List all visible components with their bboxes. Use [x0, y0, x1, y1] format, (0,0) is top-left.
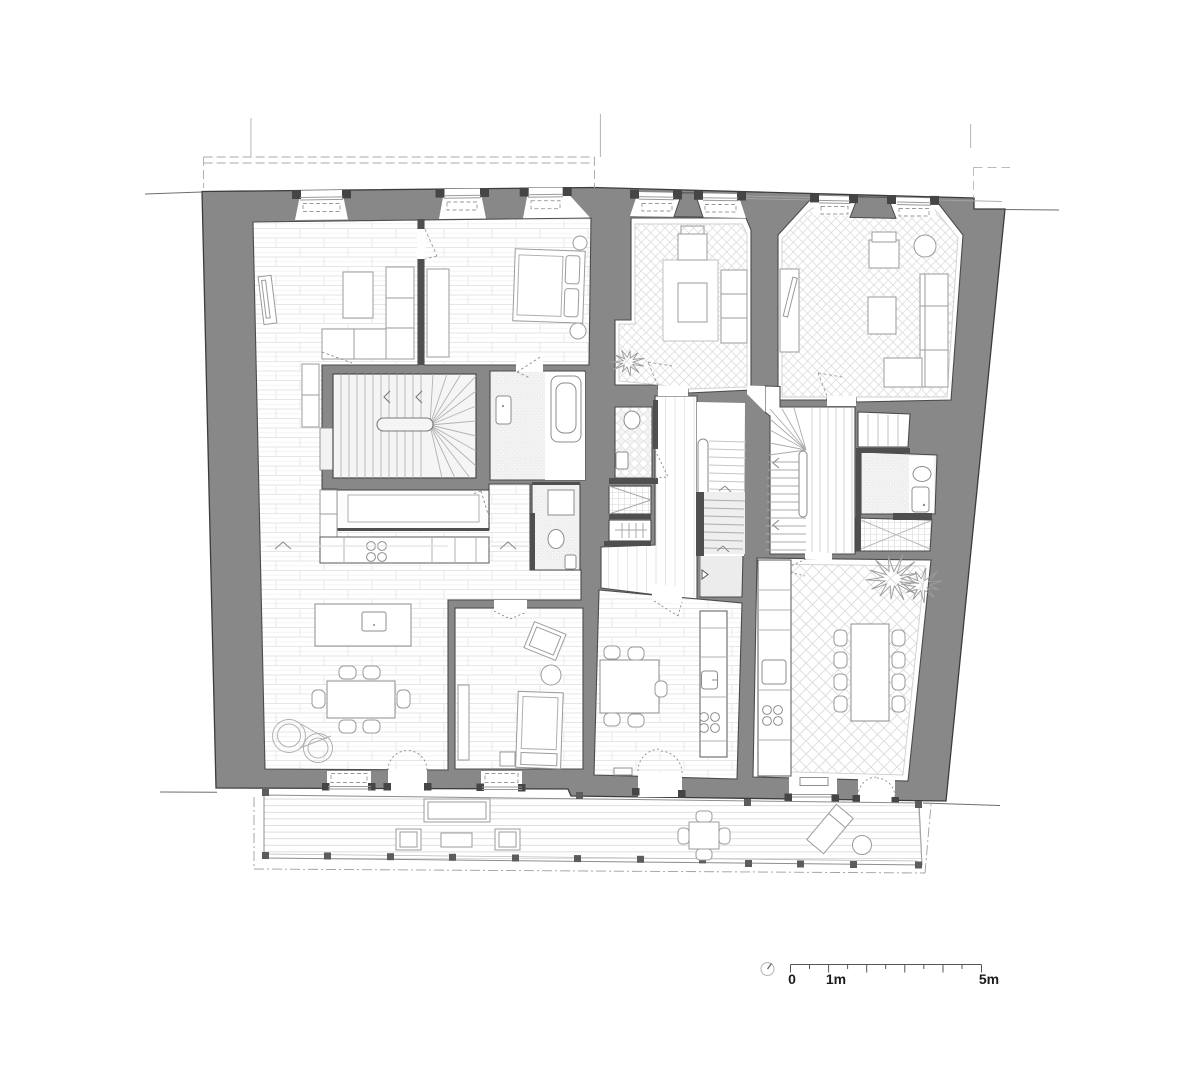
svg-text:1m: 1m [826, 971, 846, 987]
svg-text:5m: 5m [979, 971, 999, 987]
svg-text:0: 0 [788, 971, 796, 987]
